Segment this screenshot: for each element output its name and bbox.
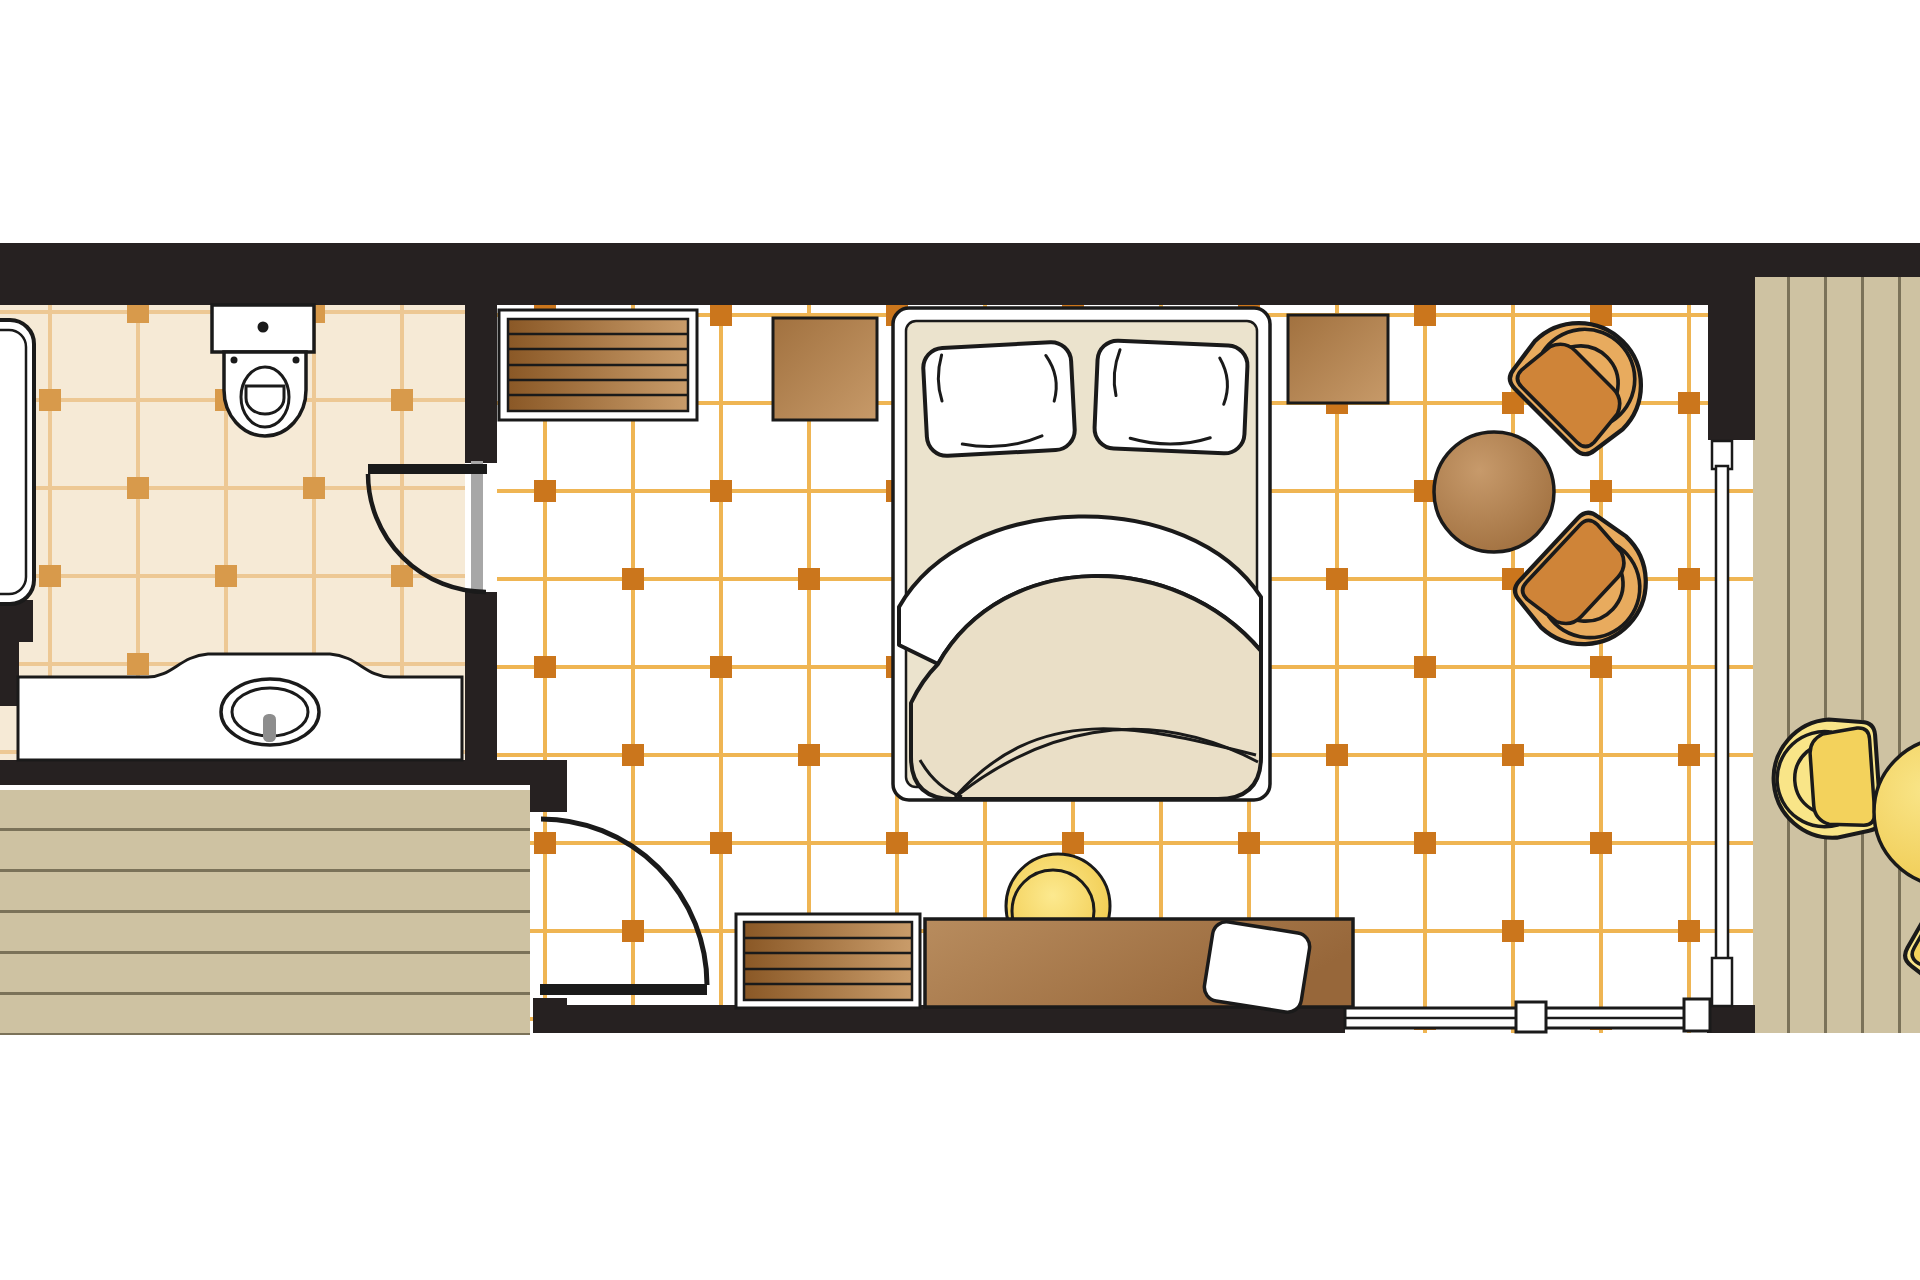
bathtub bbox=[0, 320, 34, 604]
floor-plan-canvas bbox=[0, 0, 1920, 1280]
entry-wood-deck bbox=[0, 790, 530, 1035]
pillow-left bbox=[922, 341, 1075, 457]
wall-entry-step bbox=[530, 785, 567, 812]
nightstand-left bbox=[773, 318, 877, 420]
nightstand-right bbox=[1288, 315, 1388, 403]
wall-top bbox=[0, 243, 1755, 305]
balcony-wood-deck bbox=[1753, 277, 1920, 1033]
slatted-bench-top bbox=[499, 310, 697, 420]
window-end-post bbox=[1684, 999, 1710, 1031]
wall-bathroom-upper bbox=[465, 303, 497, 463]
wall-right-corner bbox=[1707, 1005, 1755, 1033]
pillow-right bbox=[1094, 340, 1249, 454]
wall-right-upper bbox=[1708, 305, 1755, 440]
sliding-glass-door bbox=[1712, 441, 1732, 1006]
round-table bbox=[1434, 432, 1554, 552]
wall-left-stub-b bbox=[0, 642, 19, 706]
bathroom-door-jamb bbox=[471, 461, 483, 593]
wall-bathroom-lower bbox=[465, 592, 497, 762]
wall-left-stub-a bbox=[0, 600, 33, 642]
wall-bathroom-bottom bbox=[0, 760, 567, 785]
luggage-bench bbox=[736, 914, 920, 1008]
window-mullion bbox=[1516, 1002, 1546, 1032]
wall-bottom bbox=[533, 1005, 1345, 1033]
double-bed bbox=[893, 308, 1270, 800]
tv bbox=[1202, 920, 1311, 1014]
wall-top-balcony bbox=[1753, 243, 1920, 277]
floor-plan bbox=[0, 0, 1920, 1280]
faucet-icon bbox=[263, 714, 276, 742]
